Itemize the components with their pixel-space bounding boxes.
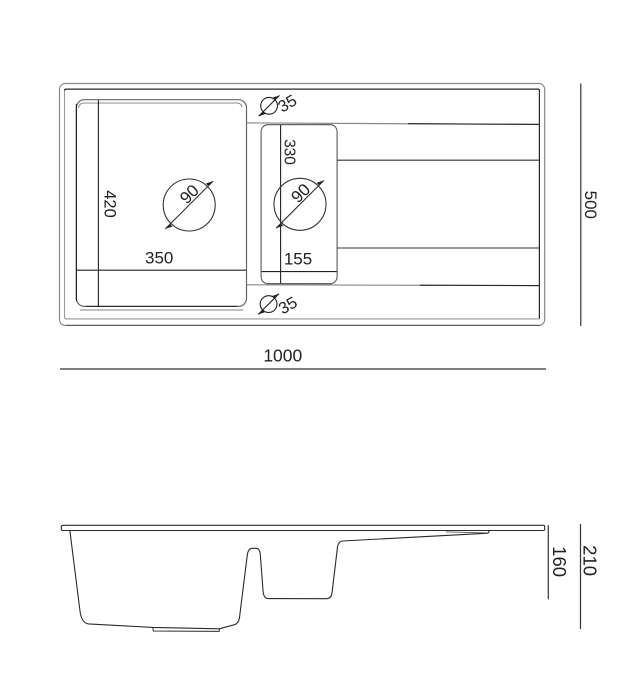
svg-text:155: 155 (284, 249, 312, 268)
svg-text:350: 350 (145, 249, 173, 268)
svg-text:210: 210 (580, 545, 601, 576)
svg-text:500: 500 (581, 191, 600, 219)
svg-text:160: 160 (549, 546, 570, 577)
svg-text:420: 420 (100, 190, 118, 218)
svg-text:330: 330 (281, 139, 298, 165)
svg-text:1000: 1000 (263, 346, 302, 366)
